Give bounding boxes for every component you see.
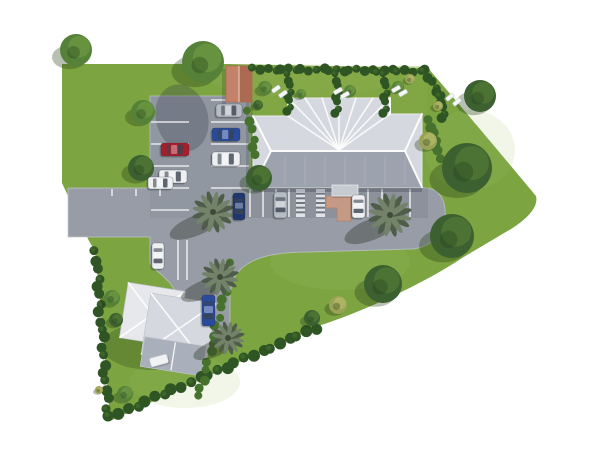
disabled-stall-hatching	[316, 189, 325, 217]
hedge-bush-highlight	[195, 393, 199, 397]
hedge-bush-highlight	[91, 247, 96, 252]
car-rear-window	[354, 200, 364, 203]
hedge-bush-highlight	[437, 155, 442, 160]
hedge-bush-highlight	[214, 366, 219, 371]
car-rear-window	[154, 248, 163, 252]
car	[211, 128, 241, 143]
entrance-canopy	[332, 185, 358, 196]
hedge-bush	[99, 331, 110, 342]
car	[351, 195, 366, 220]
car	[160, 143, 190, 158]
tree-canopy-core	[252, 175, 262, 185]
car-roof-highlight	[222, 154, 228, 164]
palm-crown	[387, 212, 393, 218]
tree-canopy-core	[191, 57, 208, 74]
disabled-stall-hatching	[296, 189, 305, 217]
hedge-bush-highlight	[425, 116, 430, 121]
tree-canopy-core	[97, 389, 100, 392]
car	[147, 177, 174, 191]
tree-canopy-core	[435, 105, 439, 109]
hedge-bush	[175, 382, 186, 393]
hedge-bush-highlight	[103, 406, 108, 411]
hedge-bush	[428, 77, 437, 86]
hedge-bush-highlight	[249, 65, 253, 69]
car-windshield	[163, 179, 168, 188]
hedge-bush	[274, 337, 286, 349]
hedge-bush-highlight	[97, 276, 102, 281]
car-windshield	[178, 145, 183, 155]
tree-canopy-core	[407, 78, 411, 82]
hedge-bush-highlight	[380, 71, 384, 75]
tree-canopy-core	[373, 279, 388, 294]
hedge-bush-highlight	[99, 326, 104, 331]
hedge-bush-highlight	[104, 412, 109, 417]
site-plan-3d-rendering	[0, 0, 600, 450]
tree-canopy-core	[112, 318, 118, 324]
car-roof-highlight	[154, 252, 162, 258]
hedge-bush	[93, 306, 104, 317]
hedge-bush-highlight	[217, 315, 221, 319]
site-plan-page	[0, 0, 600, 450]
hedge-bush	[104, 393, 114, 403]
hedge-bush-highlight	[334, 66, 338, 70]
hedge-bush-highlight	[292, 333, 297, 338]
hedge-bush	[285, 96, 293, 104]
tree-canopy-core	[453, 162, 473, 182]
hedge-bush	[437, 113, 447, 123]
hedge-bush-highlight	[188, 379, 193, 384]
hedge-bush-highlight	[240, 354, 245, 359]
car-windshield	[232, 106, 237, 116]
car-roof-highlight	[157, 179, 163, 187]
hedge-bush	[400, 65, 410, 75]
car-roof-highlight	[225, 106, 231, 115]
car-windshield	[229, 154, 234, 165]
car-rear-window	[167, 145, 171, 155]
car	[215, 104, 243, 119]
hedge-bush	[165, 383, 177, 395]
hedge-bush-highlight	[203, 367, 207, 371]
garden-shed-roof	[222, 66, 252, 105]
hedge-bush-highlight	[252, 137, 256, 141]
hedge-bush	[93, 264, 103, 274]
palm-crown	[210, 209, 216, 215]
car	[151, 243, 165, 271]
hedge-bush	[149, 391, 160, 402]
hedge-bush	[248, 124, 257, 133]
hedge-bush	[333, 97, 341, 105]
hedge-bush-highlight	[354, 66, 358, 70]
shed-shadow	[222, 69, 226, 105]
hedge-bush-highlight	[100, 352, 105, 357]
hedge-bush	[360, 66, 370, 76]
hedge-bush	[248, 350, 260, 362]
hedge-bush	[330, 109, 339, 118]
hedge-bush	[217, 302, 226, 311]
hedge-bush-highlight	[373, 69, 377, 73]
hedge-bush	[138, 396, 150, 408]
tree-canopy-core	[121, 392, 127, 398]
car-rear-window	[153, 179, 157, 188]
car-windshield	[229, 130, 234, 140]
shed-roof-dark-slope	[239, 66, 252, 102]
main-roof-south-slope	[253, 151, 422, 187]
palm-crown	[217, 274, 223, 280]
tree-canopy-core	[423, 139, 430, 146]
tree-canopy-core	[136, 109, 146, 119]
hedge-bush	[381, 97, 389, 105]
hedge-bush-highlight	[314, 67, 318, 71]
tree-canopy-core	[67, 46, 80, 59]
car-rear-window	[218, 130, 222, 140]
car-roof-highlight	[204, 306, 213, 313]
hedge-bush-highlight	[436, 93, 440, 97]
car	[273, 192, 288, 220]
car-rear-window	[204, 301, 214, 305]
tree-canopy-core	[471, 92, 484, 105]
car-roof-highlight	[354, 203, 363, 208]
hedge-bush	[264, 64, 273, 73]
tree-canopy-core	[308, 316, 314, 322]
car-rear-window	[235, 198, 244, 202]
tree-canopy-core	[440, 231, 458, 249]
hedge-bush	[255, 65, 265, 75]
car-windshield	[354, 209, 364, 213]
car	[201, 295, 216, 328]
hedge-bush-highlight	[102, 377, 107, 382]
hedge-bush-highlight	[284, 71, 288, 75]
hedge-bush	[200, 376, 210, 386]
car-windshield	[204, 314, 214, 320]
car-windshield	[235, 209, 244, 214]
tree-canopy-core	[333, 303, 340, 310]
hedge-bush-highlight	[393, 68, 397, 72]
car	[211, 152, 241, 168]
hedge-bush-highlight	[420, 68, 424, 72]
car-rear-window	[276, 197, 286, 201]
hedge-bush	[94, 289, 104, 299]
car-roof-highlight	[276, 201, 285, 207]
hedge-bush	[228, 357, 239, 368]
hedge-bush	[282, 107, 291, 116]
car	[232, 193, 246, 222]
hedge-bush-highlight	[244, 108, 248, 112]
car-roof-highlight	[171, 145, 177, 154]
hedge-bush-highlight	[332, 71, 336, 75]
hedge-bush	[378, 109, 387, 118]
hedge-bush	[112, 408, 124, 420]
car-windshield	[154, 259, 163, 264]
hedge-bush-highlight	[266, 345, 271, 350]
tree-canopy-core	[134, 165, 144, 175]
hedge-bush	[195, 384, 204, 393]
hedge-bush	[123, 403, 134, 414]
tree-canopy-core	[298, 93, 302, 97]
car-roof-highlight	[222, 130, 228, 139]
car-windshield	[176, 172, 181, 182]
hedge-bush	[286, 81, 294, 89]
hedge-bush	[251, 150, 260, 159]
hedge-bush	[295, 64, 305, 74]
tree-canopy-core	[255, 104, 259, 108]
car-rear-window	[221, 106, 225, 116]
car-rear-window	[218, 154, 222, 165]
palm-crown	[225, 335, 231, 341]
tree-canopy-core	[108, 296, 114, 302]
tree-canopy-core	[261, 86, 267, 92]
car-roof-highlight	[235, 203, 243, 209]
hedge-bush	[382, 81, 390, 89]
hedge-bush	[304, 67, 313, 76]
hedge-bush	[344, 66, 353, 75]
car-windshield	[276, 208, 286, 213]
